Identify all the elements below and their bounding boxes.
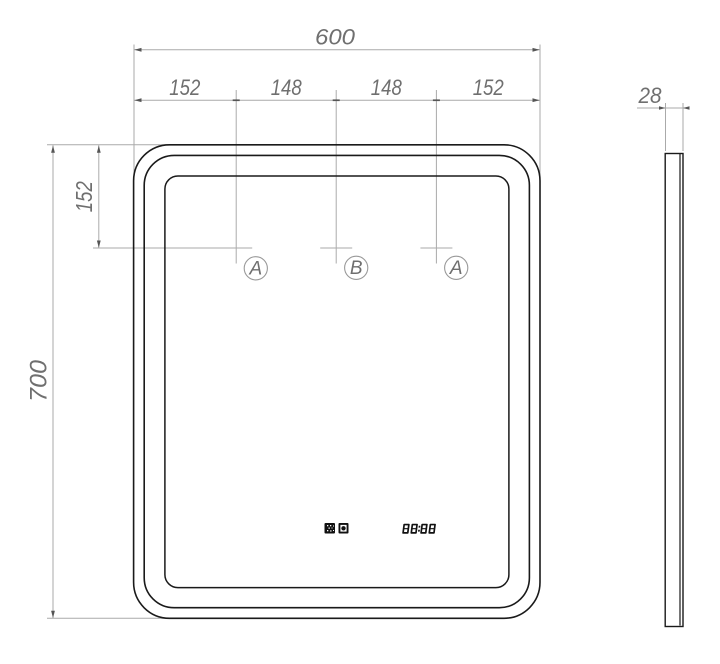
svg-text:A: A [248,259,262,280]
svg-text:700: 700 [26,359,53,402]
svg-text:148: 148 [371,75,403,100]
svg-text:B: B [350,258,363,279]
svg-text:152: 152 [169,75,200,100]
svg-text:152: 152 [473,75,504,100]
svg-text:28: 28 [638,83,663,108]
svg-text:152: 152 [71,181,97,212]
svg-text:600: 600 [315,25,356,50]
svg-text:148: 148 [271,75,303,100]
svg-text:A: A [449,258,463,279]
